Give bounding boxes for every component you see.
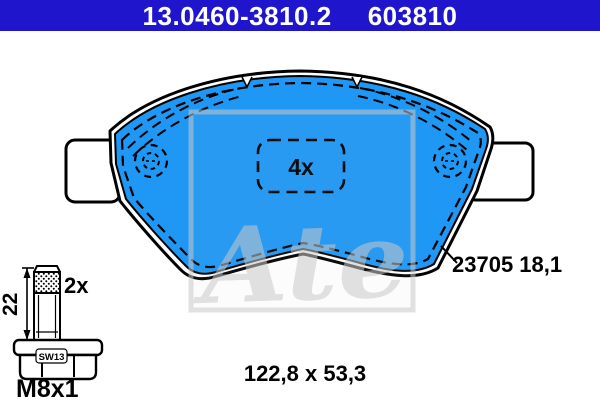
wrench-size-label: SW13 [39,352,65,363]
bolt-length-label: 22 [0,293,22,316]
guide-bolt-drawing: 22 SW13 2x M8x1 [0,266,102,400]
trace-code-label: 23705 18,1 [452,252,562,277]
dim-arrow-up [24,268,31,278]
bolt-quantity-label: 2x [64,273,89,298]
page: 13.0460-3810.2 603810 [0,0,600,400]
bolt-thread [34,272,60,293]
bolt-length-dimension: 22 [0,268,34,340]
dim-arrow-down [24,330,31,340]
ate-watermark: Ate [189,112,413,328]
watermark-logo-text: Ate [189,198,411,329]
pad-dimensions-label: 122,8 x 53,3 [244,361,366,386]
bolt-thread-label: M8x1 [16,375,79,400]
technical-drawing: 4x Ate 23705 18,1 122,8 x 53,3 22 [0,0,600,400]
